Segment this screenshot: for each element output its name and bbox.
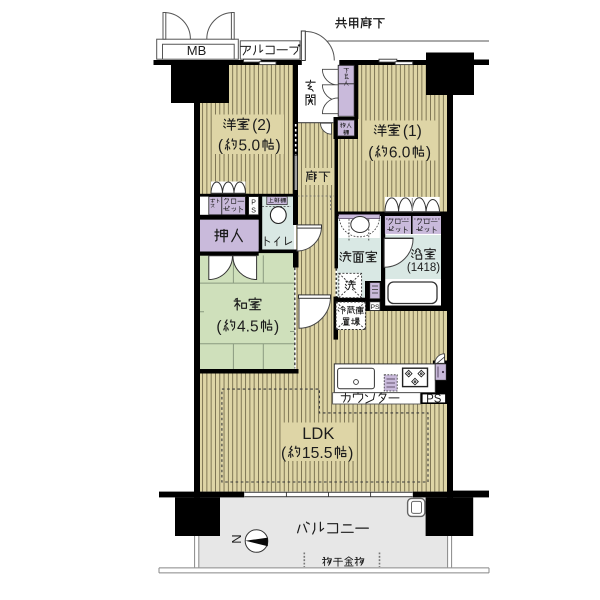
svg-text:(: ( [218, 138, 224, 155]
svg-text:5.0: 5.0 [239, 138, 261, 155]
svg-text:): ) [274, 319, 279, 336]
svg-text:(2): (2) [252, 117, 271, 134]
svg-text:): ) [276, 138, 281, 155]
svg-text:(: ( [216, 319, 222, 336]
svg-text:N: N [229, 534, 244, 543]
svg-text:(: ( [281, 445, 287, 462]
svg-text:(: ( [368, 145, 374, 162]
svg-text:4.5: 4.5 [237, 319, 259, 336]
svg-text:MB: MB [187, 43, 207, 58]
svg-text:LDK: LDK [302, 425, 334, 443]
svg-text:PS: PS [426, 393, 442, 405]
svg-text:15.5: 15.5 [302, 445, 333, 462]
svg-text:PS: PS [370, 304, 380, 311]
svg-text:6.0: 6.0 [389, 145, 411, 162]
svg-text:P: P [251, 200, 256, 207]
svg-text:S: S [251, 208, 256, 215]
svg-text:(1): (1) [403, 123, 422, 140]
svg-text:): ) [426, 145, 431, 162]
svg-text:(1418): (1418) [407, 262, 440, 274]
svg-text:): ) [348, 445, 353, 462]
